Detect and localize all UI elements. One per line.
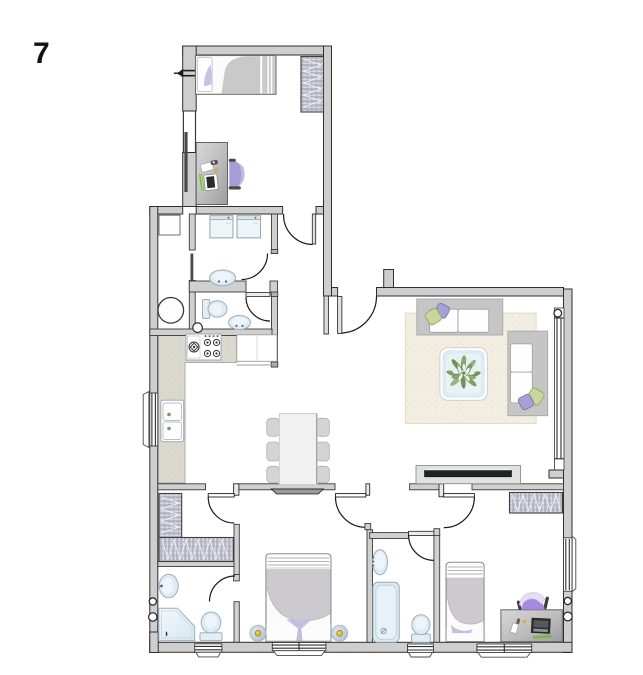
svg-text:7: 7: [33, 37, 50, 70]
